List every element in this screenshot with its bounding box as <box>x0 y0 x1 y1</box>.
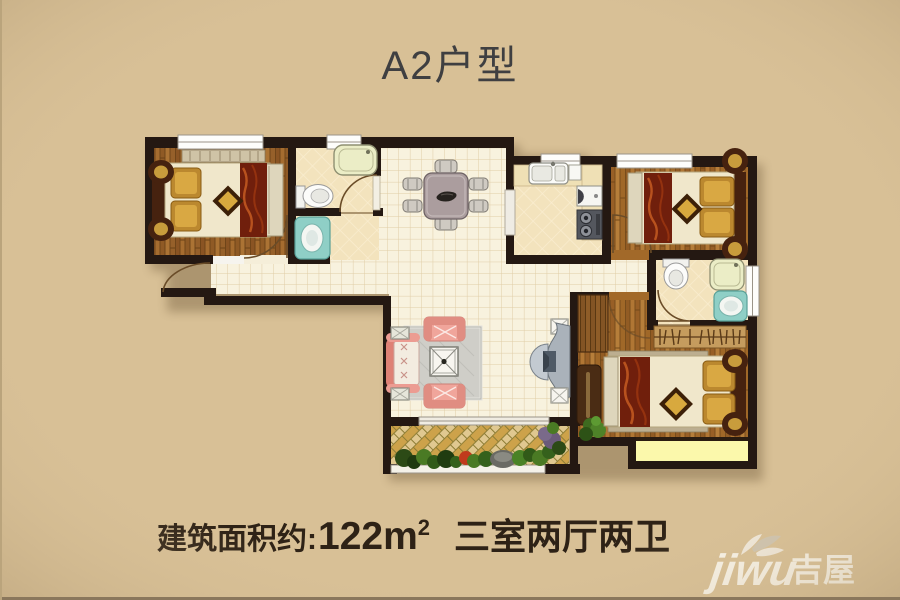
svg-text:jiwu: jiwu <box>703 546 800 595</box>
svg-text:A2户型: A2户型 <box>382 44 519 88</box>
svg-text:吉屋: 吉屋 <box>791 552 855 588</box>
